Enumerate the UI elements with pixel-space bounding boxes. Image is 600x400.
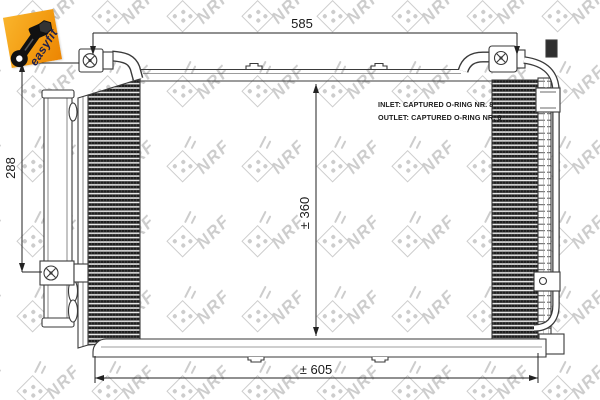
core-fins-left (78, 79, 140, 348)
technical-drawing-canvas: NRF NRF NRF NRF NRF NRF NRF NRF (0, 0, 600, 400)
dimension-height-core: ± 360 (297, 84, 319, 336)
dim-label-288: 288 (3, 157, 18, 179)
oring-notes: INLET: CAPTURED O-RING NR. 8 OUTLET: CAP… (378, 100, 502, 122)
bracket-lower-left (40, 261, 88, 285)
outlet-note: OUTLET: CAPTURED O-RING NR. 6 (378, 113, 502, 122)
top-tank (138, 64, 492, 82)
easyfit-badge: easyfit (3, 9, 62, 68)
receiver-drier (42, 90, 78, 327)
dimension-width-top: 585 (90, 16, 520, 55)
inlet-note: INLET: CAPTURED O-RING NR. 8 (378, 100, 493, 109)
dim-label-605: ± 605 (300, 362, 332, 377)
bottom-tank (93, 339, 546, 362)
condenser-drawing: 585 288 ± 360 (0, 0, 600, 400)
dim-label-360: ± 360 (297, 197, 312, 229)
dim-label-585: 585 (291, 16, 313, 31)
outlet-fitting (79, 49, 138, 79)
